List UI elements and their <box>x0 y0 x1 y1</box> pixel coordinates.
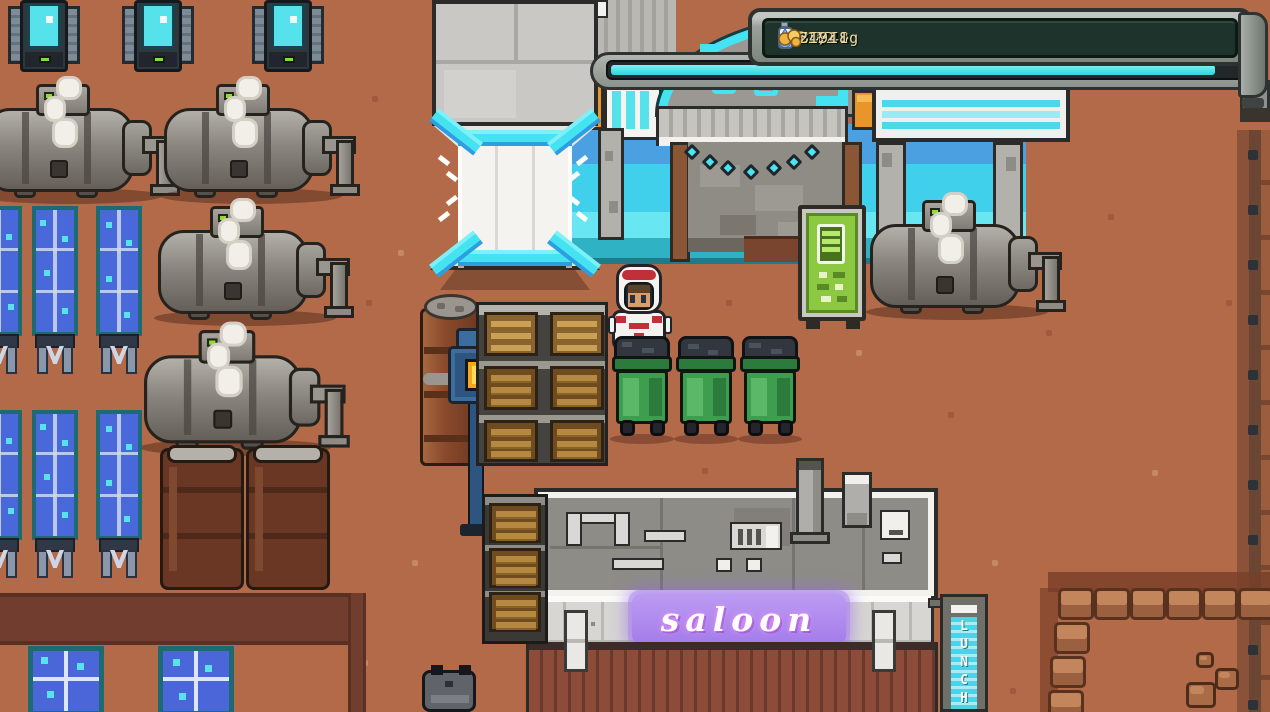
lunch-sign-top-band <box>951 605 977 613</box>
post-line <box>875 639 893 643</box>
lunch-sign-letter: N <box>960 654 968 672</box>
chimney-top <box>799 461 821 470</box>
tank-band <box>264 112 271 184</box>
solar-mullion <box>0 290 18 293</box>
roof-panel <box>444 70 516 118</box>
ground-dot <box>992 560 998 566</box>
tank-band <box>22 112 29 184</box>
sign-foot <box>846 317 860 329</box>
hud-end-cap-shadow <box>1242 98 1264 108</box>
chimney-flange <box>790 532 830 544</box>
solar-sparkle <box>106 222 112 228</box>
solar-panel-small[interactable] <box>28 646 104 712</box>
solar-leg <box>126 550 137 578</box>
battery-bar <box>822 247 840 252</box>
solar-sparkle <box>173 659 180 666</box>
condenser-led <box>153 56 165 63</box>
solar-panel-column[interactable] <box>0 410 22 588</box>
solar-sparkle <box>126 240 132 246</box>
pebble[interactable] <box>1186 682 1216 708</box>
ground-dot <box>856 350 862 356</box>
solar-mullion <box>36 452 74 455</box>
gas-tank[interactable] <box>0 84 180 208</box>
ground-dot <box>726 300 732 306</box>
solar-mullion <box>100 248 138 251</box>
pillar-mottle <box>882 153 892 167</box>
wooden-crate[interactable] <box>550 366 604 410</box>
solar-sparkle <box>179 693 186 700</box>
smoke-puff <box>56 76 82 100</box>
hud-stats-row: Sol 32 16 52/62 O2 36/40 24/48 1911g <box>762 18 1238 58</box>
roof-vent <box>612 558 664 570</box>
smoke-puff <box>224 96 246 122</box>
solar-sparkle <box>106 480 112 486</box>
ground-dot <box>948 412 954 418</box>
screen-sparkle <box>290 16 297 23</box>
barrel-speckle <box>455 306 464 312</box>
solar-sparkle <box>44 474 50 480</box>
solar-mullion <box>117 210 121 332</box>
fence-stud <box>1248 645 1258 655</box>
solar-sparkle <box>106 426 112 432</box>
smoke-puff <box>938 234 964 264</box>
solar-mullion <box>53 210 57 332</box>
gas-tank[interactable] <box>158 206 354 330</box>
solar-sparkle <box>8 304 14 310</box>
ground-dot <box>372 96 378 102</box>
suit-chest-stripe <box>629 323 649 329</box>
fence-stud <box>1248 150 1258 160</box>
battery-charging-sign[interactable] <box>798 205 866 321</box>
bin-shade <box>649 378 662 416</box>
roof-vent-small <box>746 558 762 572</box>
bin-shade <box>713 378 726 416</box>
fence-planks <box>1261 130 1270 712</box>
condenser-led <box>283 56 295 63</box>
solar-sparkle <box>44 270 50 276</box>
stone-block <box>755 185 803 211</box>
ground-dot <box>1046 330 1052 336</box>
solar-sparkle <box>77 663 84 670</box>
tank-band <box>908 228 915 300</box>
solar-panel-column[interactable] <box>96 410 142 588</box>
smoke-puff <box>44 96 66 122</box>
solar-leg <box>37 346 48 374</box>
barrel-rim <box>253 445 323 463</box>
solar-sparkle <box>8 508 14 514</box>
wooden-crate[interactable] <box>489 548 541 588</box>
pebble[interactable] <box>1215 668 1239 690</box>
character-arm <box>608 316 616 334</box>
grill-handle <box>431 665 443 675</box>
character-eye <box>630 295 635 303</box>
saloon-chimney <box>796 458 824 540</box>
platform-stripe <box>882 100 1060 107</box>
dome-neon-rim <box>816 96 848 106</box>
lunch-sign-panel: L U N C H <box>951 617 977 709</box>
wooden-crate[interactable] <box>484 312 538 356</box>
sign-face <box>806 213 858 313</box>
pebble[interactable] <box>1196 652 1214 668</box>
fence-stud <box>1248 535 1258 545</box>
solar-leg <box>101 550 112 578</box>
ground-dot <box>412 560 418 566</box>
fence-stud-strip <box>1249 130 1261 712</box>
barrel-speckle <box>437 303 445 309</box>
tank-pipe-foot <box>324 306 354 318</box>
dirt-path-horizontal <box>0 593 360 645</box>
bin-wheel <box>620 420 635 436</box>
smoke-puff <box>226 240 252 270</box>
solar-sparkle <box>205 665 212 672</box>
tank-band <box>84 112 91 184</box>
tank-pipe <box>336 140 354 190</box>
dirt-path-vertical <box>348 593 366 712</box>
rock-block[interactable] <box>1166 588 1202 620</box>
sign-pixel-text <box>817 284 829 290</box>
ground-dot <box>1152 470 1158 476</box>
solar-sparkle <box>106 276 112 282</box>
solar-mullion <box>0 494 18 497</box>
solar-sparkle <box>124 516 130 522</box>
ground-dot <box>398 250 404 256</box>
screen-sparkle <box>46 16 53 23</box>
roof-vent-box <box>880 510 910 540</box>
condenser-screen <box>27 3 61 49</box>
saloon-neon-sign: saloon <box>632 594 846 644</box>
gray-pillar <box>598 128 624 240</box>
sign-pixel-text <box>819 272 827 278</box>
smoke-puff <box>218 218 240 244</box>
solar-mullion <box>0 452 18 455</box>
rock-block[interactable] <box>1050 656 1086 688</box>
lunch-sign-letter: H <box>960 690 968 708</box>
vent-bar <box>612 91 621 129</box>
metal-corner-shadow <box>1240 108 1270 122</box>
tower-roof[interactable] <box>432 0 598 126</box>
solar-leg <box>6 550 17 578</box>
roof-seam <box>514 4 518 60</box>
smoke-puff <box>942 192 968 216</box>
rock-block[interactable] <box>1238 588 1270 620</box>
wall-rivet <box>591 622 595 626</box>
rust-barrel-top <box>424 294 478 320</box>
storage-barrel-dark[interactable] <box>160 448 244 590</box>
chimney-shade <box>813 470 821 534</box>
roof-vent-small <box>716 558 732 572</box>
solar-sparkle <box>124 312 130 318</box>
tank-band <box>202 112 209 184</box>
compost-bin[interactable] <box>676 336 736 444</box>
tank-hatch <box>213 410 232 429</box>
money-value: 1911g <box>809 29 859 47</box>
fence-stud <box>1248 700 1258 710</box>
solar-sparkle <box>40 220 46 226</box>
bin-panel <box>623 378 639 416</box>
tank-pipe-foot <box>318 435 350 448</box>
lunch-sign[interactable]: L U N C H <box>940 594 988 712</box>
sign-pixel-text <box>833 272 845 278</box>
solar-glass <box>0 206 22 336</box>
rock-block[interactable] <box>1094 588 1130 620</box>
tank-band <box>249 359 256 435</box>
roof-vent-pipe <box>614 512 630 546</box>
saloon-roof[interactable] <box>534 488 938 600</box>
fence-stud <box>1248 260 1258 270</box>
wooden-crate[interactable] <box>484 420 538 462</box>
solar-leg <box>6 346 17 374</box>
orange-crate-highlight <box>857 95 873 102</box>
condenser-screen <box>271 3 305 49</box>
tank-band <box>258 234 265 306</box>
ground-dot <box>1010 688 1016 694</box>
smoke-puff <box>232 118 258 148</box>
storage-barrel-dark[interactable] <box>246 448 330 590</box>
roof-seam <box>660 498 663 590</box>
wooden-crate[interactable] <box>550 312 604 356</box>
gas-tank[interactable] <box>144 330 350 460</box>
tank-band <box>196 234 203 306</box>
smoke-puff <box>236 76 262 100</box>
solar-panel-column[interactable] <box>96 206 142 384</box>
suit-shoulder-patch <box>652 316 662 323</box>
solar-glass <box>0 410 22 540</box>
roof-seam <box>792 498 795 590</box>
solar-mullion <box>53 414 57 536</box>
tank-pipe <box>325 389 344 442</box>
smoke-puff <box>207 343 230 370</box>
coins-icon <box>778 29 802 47</box>
entrance-awning-corrugated <box>656 106 848 146</box>
roof-seam <box>436 60 594 64</box>
ground-dot <box>1108 214 1114 220</box>
game-viewport: saloon L U N C H <box>0 0 1270 712</box>
helmet-visor <box>624 282 654 310</box>
bin-shadow <box>674 434 738 444</box>
chimney-cap <box>845 475 869 484</box>
character-eye <box>641 295 646 303</box>
solar-leg <box>62 550 73 578</box>
wooden-crate[interactable] <box>489 592 541 632</box>
panel-mullion <box>33 677 99 681</box>
barrel-rim <box>167 445 237 463</box>
lunch-sign-letter: U <box>960 636 968 654</box>
condenser-unit[interactable] <box>252 0 324 74</box>
platform-stripe <box>882 111 1060 118</box>
wall-post-right <box>872 610 896 672</box>
solar-mullion <box>36 248 74 251</box>
bin-wheel <box>714 420 729 436</box>
rock-block[interactable] <box>1048 690 1084 712</box>
solar-panel-small[interactable] <box>158 646 234 712</box>
gas-tank[interactable] <box>164 84 360 208</box>
wooden-crate[interactable] <box>489 503 541 543</box>
solar-mullion <box>0 210 1 332</box>
solar-leg <box>126 346 137 374</box>
condenser-unit[interactable] <box>122 0 194 74</box>
roof-vent-pipe <box>566 512 582 546</box>
roof-vent-small <box>882 552 902 564</box>
wall-seam <box>601 602 604 640</box>
tower-shadow <box>440 266 590 290</box>
lunch-sign-letter: C <box>960 672 968 690</box>
battery-icon <box>817 224 845 264</box>
battery-bar <box>822 239 840 244</box>
tower-face-seam <box>495 140 498 266</box>
bin-shadow <box>610 434 674 444</box>
solar-sparkle <box>47 691 54 698</box>
smoke-puff <box>930 212 952 238</box>
solar-sparkle <box>40 424 46 430</box>
panel-mullion <box>64 651 68 711</box>
tower-dash <box>438 155 451 166</box>
tank-pipe-foot <box>330 184 360 196</box>
fence-stud <box>1248 315 1258 325</box>
tank-band <box>970 228 977 300</box>
tank-pipe-foot <box>1036 300 1066 312</box>
solar-mullion <box>100 494 138 497</box>
sign-foot <box>806 317 820 329</box>
solar-sparkle <box>126 444 132 450</box>
tower-dash <box>446 171 459 182</box>
solar-panel-column[interactable] <box>0 206 22 384</box>
pillar-mottle <box>609 201 618 213</box>
bin-wheel <box>778 420 793 436</box>
wooden-crate[interactable] <box>550 420 604 462</box>
condenser-unit[interactable] <box>8 0 80 74</box>
lunch-sign-letter: L <box>960 618 968 636</box>
sign-pixel-text <box>821 296 831 302</box>
panel-mullion <box>163 677 229 681</box>
platform-stripe <box>882 122 1060 129</box>
solar-sparkle <box>41 657 48 664</box>
tank-hatch <box>50 160 68 178</box>
vent-bar <box>626 91 635 129</box>
solar-mullion <box>100 452 138 455</box>
solar-panel-column[interactable] <box>32 410 78 588</box>
fence-stud <box>1248 205 1258 215</box>
bbq-grill[interactable] <box>422 670 476 712</box>
bin-panel <box>687 378 703 416</box>
character-helmet <box>616 264 662 314</box>
solar-mullion <box>36 290 74 293</box>
tower-dash <box>438 211 451 222</box>
tower-dash <box>446 195 459 206</box>
fence-shadow-band <box>1237 130 1249 712</box>
solar-sparkle <box>62 512 68 518</box>
rock-block[interactable] <box>1058 588 1094 620</box>
tank-pipe <box>1042 256 1060 306</box>
solar-sparkle <box>62 440 68 446</box>
solar-mullion <box>0 414 1 536</box>
roof-seam <box>550 546 660 549</box>
ground-dot <box>366 300 372 306</box>
tank-hatch <box>936 276 954 294</box>
bin-shade <box>777 378 790 416</box>
screen-sparkle <box>160 16 167 23</box>
sign-pixel-text <box>837 296 847 302</box>
tower-cyan-band-bottom <box>458 250 572 266</box>
bin-wheel <box>684 420 699 436</box>
solar-leg <box>101 346 112 374</box>
character-arm <box>664 316 672 334</box>
battery-bar <box>822 231 840 236</box>
rock-block[interactable] <box>1054 622 1090 654</box>
sign-pixel-text <box>835 284 843 290</box>
platform-deck <box>872 82 1070 142</box>
roof-vent <box>644 530 686 542</box>
barrel-highlight <box>255 467 263 571</box>
condenser-screen <box>141 3 175 49</box>
chimney-bulb <box>847 513 867 525</box>
ground-dot <box>1226 300 1232 306</box>
oxygen-tank-cap <box>781 22 788 27</box>
wooden-crate[interactable] <box>484 366 538 410</box>
fence-stud <box>1248 480 1258 490</box>
tank-band <box>184 359 191 435</box>
helmet-red-band <box>622 270 656 280</box>
compost-bin[interactable] <box>740 336 800 444</box>
post-line <box>567 639 585 643</box>
vent-bar <box>640 91 649 129</box>
condenser-led <box>39 56 51 63</box>
solar-leg <box>37 550 48 578</box>
smoke-puff <box>230 198 256 222</box>
smoke-puff <box>52 118 78 148</box>
wall-seam <box>909 602 912 640</box>
wall-post-left <box>564 610 588 672</box>
solar-mullion <box>36 494 74 497</box>
tower-face-seam <box>532 140 535 266</box>
tank-hatch <box>230 160 248 178</box>
neon-spectacles-arm <box>700 44 718 49</box>
bin-wheel <box>748 420 763 436</box>
smoke-puff <box>220 322 247 347</box>
fence-stud <box>1248 425 1258 435</box>
rock-block[interactable] <box>1202 588 1238 620</box>
hud-progress-fill <box>611 65 1215 75</box>
hud-end-cap <box>1238 12 1268 98</box>
smoke-puff <box>215 366 242 398</box>
bin-shadow <box>738 434 802 444</box>
solar-mullion <box>117 414 121 536</box>
pillar-mottle <box>1006 157 1016 171</box>
solar-sparkle <box>62 236 68 242</box>
tank-pipe <box>330 262 348 312</box>
roof-vent-box <box>730 522 782 550</box>
tank-hatch <box>224 282 242 300</box>
bin-panel <box>751 378 767 416</box>
barrel-highlight <box>169 467 177 571</box>
bin-wheel <box>650 420 665 436</box>
grill-vent <box>445 681 453 687</box>
grill-stripe <box>431 695 469 703</box>
ground-dot <box>702 468 708 474</box>
panel-mullion <box>194 651 198 711</box>
compost-bin[interactable] <box>612 336 672 444</box>
suit-shoulder-patch <box>616 316 626 323</box>
rock-block[interactable] <box>1130 588 1166 620</box>
stone-block <box>720 215 756 235</box>
solar-mullion <box>0 248 18 251</box>
solar-sparkle <box>6 234 12 240</box>
gas-tank[interactable] <box>870 200 1066 324</box>
pillar-mottle <box>605 151 613 161</box>
solar-sparkle <box>62 308 68 314</box>
solar-panel-column[interactable] <box>32 206 78 384</box>
saloon-chimney <box>842 472 872 528</box>
awning-post-left <box>670 142 690 262</box>
